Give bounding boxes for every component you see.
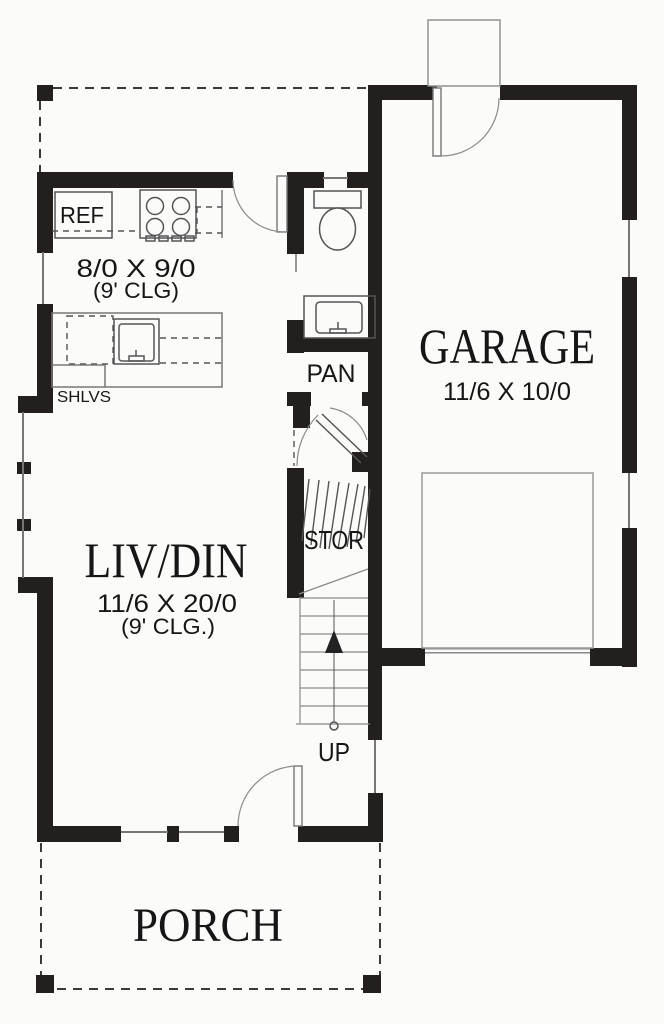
kitchen-island [52, 313, 222, 387]
up-label: UP [318, 737, 350, 767]
pantry-label: PAN [307, 360, 356, 388]
garage-door-line [425, 652, 590, 654]
garage-label: GARAGE [419, 318, 595, 374]
porch-post-left [36, 975, 54, 993]
floor-plan-drawing: REF 8/0 X 9/0 (9' CLG) SHLVS GARAGE 11/6… [0, 0, 664, 1024]
doors [233, 20, 500, 826]
front-door [238, 766, 302, 826]
stairs [296, 569, 370, 730]
garage-dim-label: 11/6 X 10/0 [443, 378, 571, 406]
kitchen-clg-label: (9' CLG) [93, 278, 179, 303]
shelves-label: SHLVS [57, 389, 111, 406]
porch-label: PORCH [133, 899, 283, 952]
range [140, 190, 196, 241]
porch-post-right [363, 975, 381, 993]
storage-label: STOR [304, 525, 364, 555]
floor-plan-page: REF 8/0 X 9/0 (9' CLG) SHLVS GARAGE 11/6… [0, 0, 664, 1024]
post-top-left [37, 85, 53, 101]
shelves-corner [52, 365, 105, 387]
living-label: LIV/DIN [85, 532, 248, 588]
kitchen-sink [114, 319, 159, 364]
ref-label: REF [60, 202, 104, 228]
bath-sink [304, 296, 375, 338]
living-clg-label: (9' CLG.) [121, 614, 215, 639]
toilet [314, 191, 361, 250]
garage-interior [422, 473, 593, 648]
garage-door-zone [422, 473, 593, 648]
kitchen-entry-door [233, 176, 287, 232]
entry-stoop [428, 20, 500, 86]
bath-fixtures [296, 191, 375, 338]
dishwasher [67, 316, 113, 364]
garage-entry-door [428, 20, 500, 156]
